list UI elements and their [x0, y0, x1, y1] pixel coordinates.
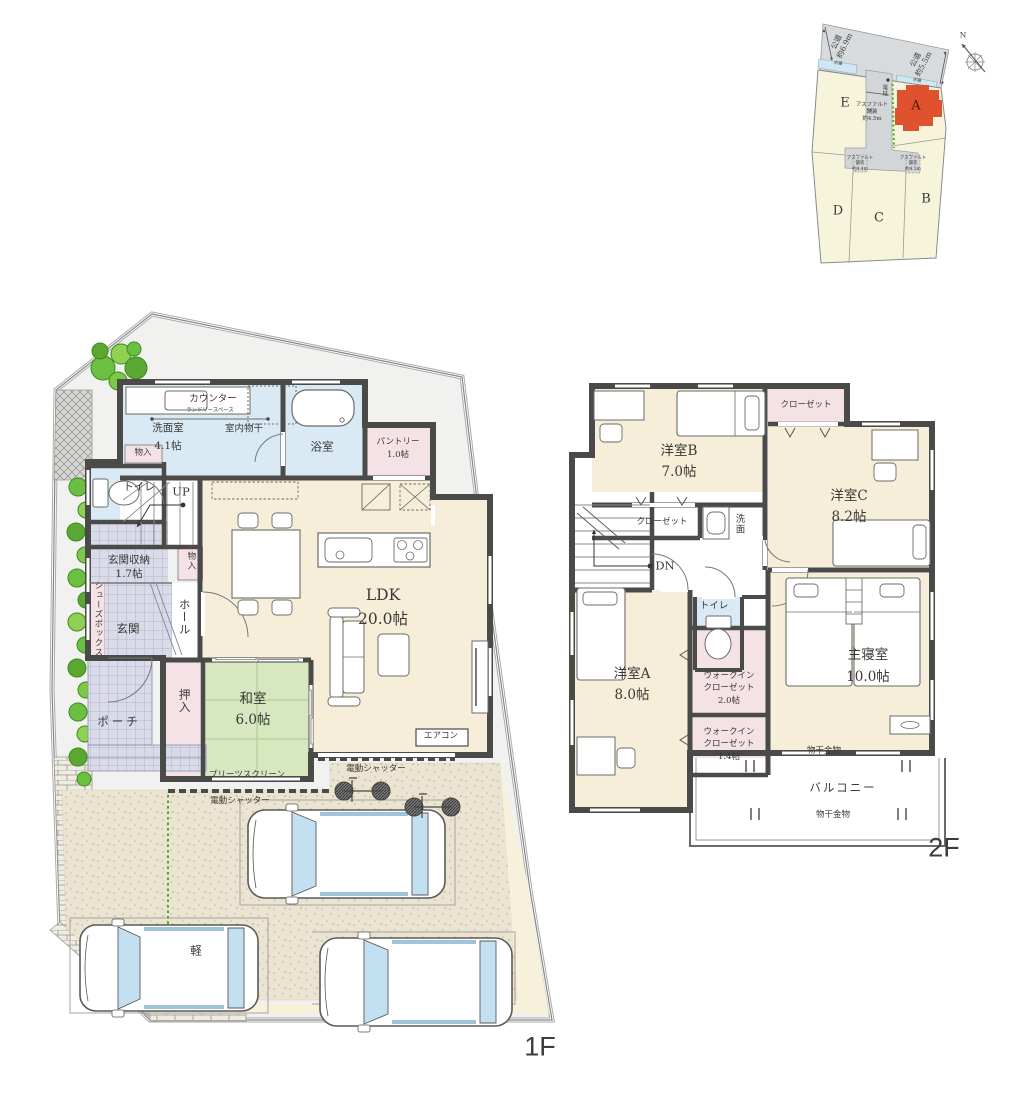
compass-icon: [962, 44, 985, 72]
room-shoesbox: [90, 583, 105, 658]
utility-pole-symbol: [886, 78, 889, 81]
room-closet-top: [768, 388, 845, 423]
floorplan-page: 公道約6.9m 公道約5.5m 水路 水路 電柱 アスファルト舗装約4.5m ア…: [0, 0, 1010, 1100]
car-sedan: [320, 932, 512, 1032]
paving-box-left: [853, 155, 867, 172]
floorplan-drawing: [0, 0, 1010, 1100]
room-porch: [88, 660, 152, 745]
room-monoire-top: [125, 445, 162, 463]
site-plan: [812, 24, 985, 263]
car-wagon: [248, 804, 445, 904]
room-genkan: [105, 583, 172, 658]
paving-box-right: [906, 155, 920, 173]
room-pantry: [365, 425, 433, 478]
balcony: [690, 758, 945, 846]
car-kei: [80, 919, 258, 1017]
room-genkan-storage: [88, 522, 168, 583]
